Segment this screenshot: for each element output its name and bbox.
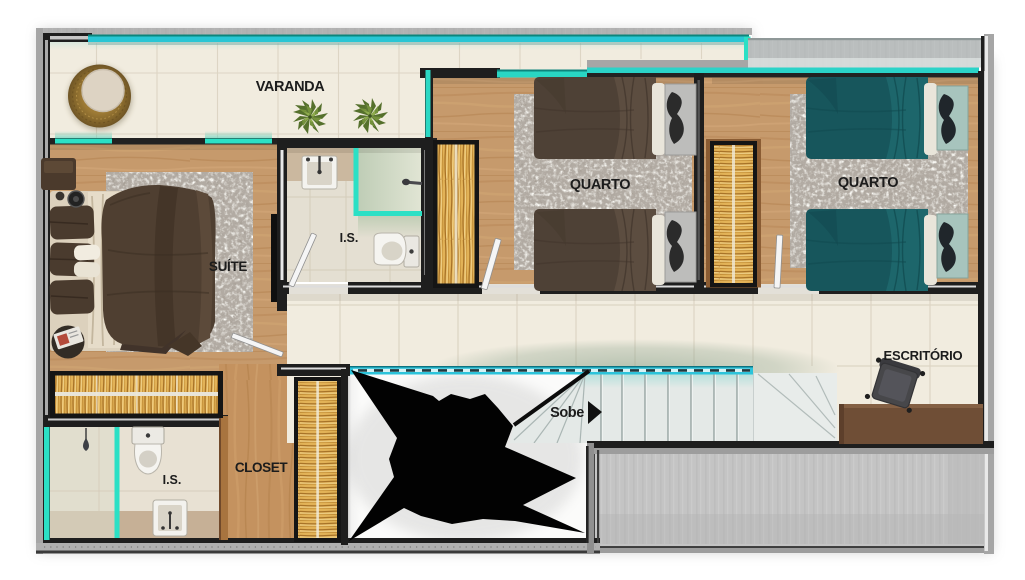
svg-text:CLOSET: CLOSET [235, 460, 289, 475]
svg-text:I.S.: I.S. [163, 473, 182, 487]
svg-text:Sobe: Sobe [550, 405, 584, 421]
svg-text:I.S.: I.S. [340, 231, 359, 245]
svg-text:VARANDA: VARANDA [256, 79, 326, 95]
svg-text:QUARTO: QUARTO [570, 177, 630, 193]
svg-text:QUARTO: QUARTO [838, 175, 898, 191]
svg-text:ESCRITÓRIO: ESCRITÓRIO [884, 348, 963, 363]
svg-text:SUÍTE: SUÍTE [209, 259, 248, 274]
